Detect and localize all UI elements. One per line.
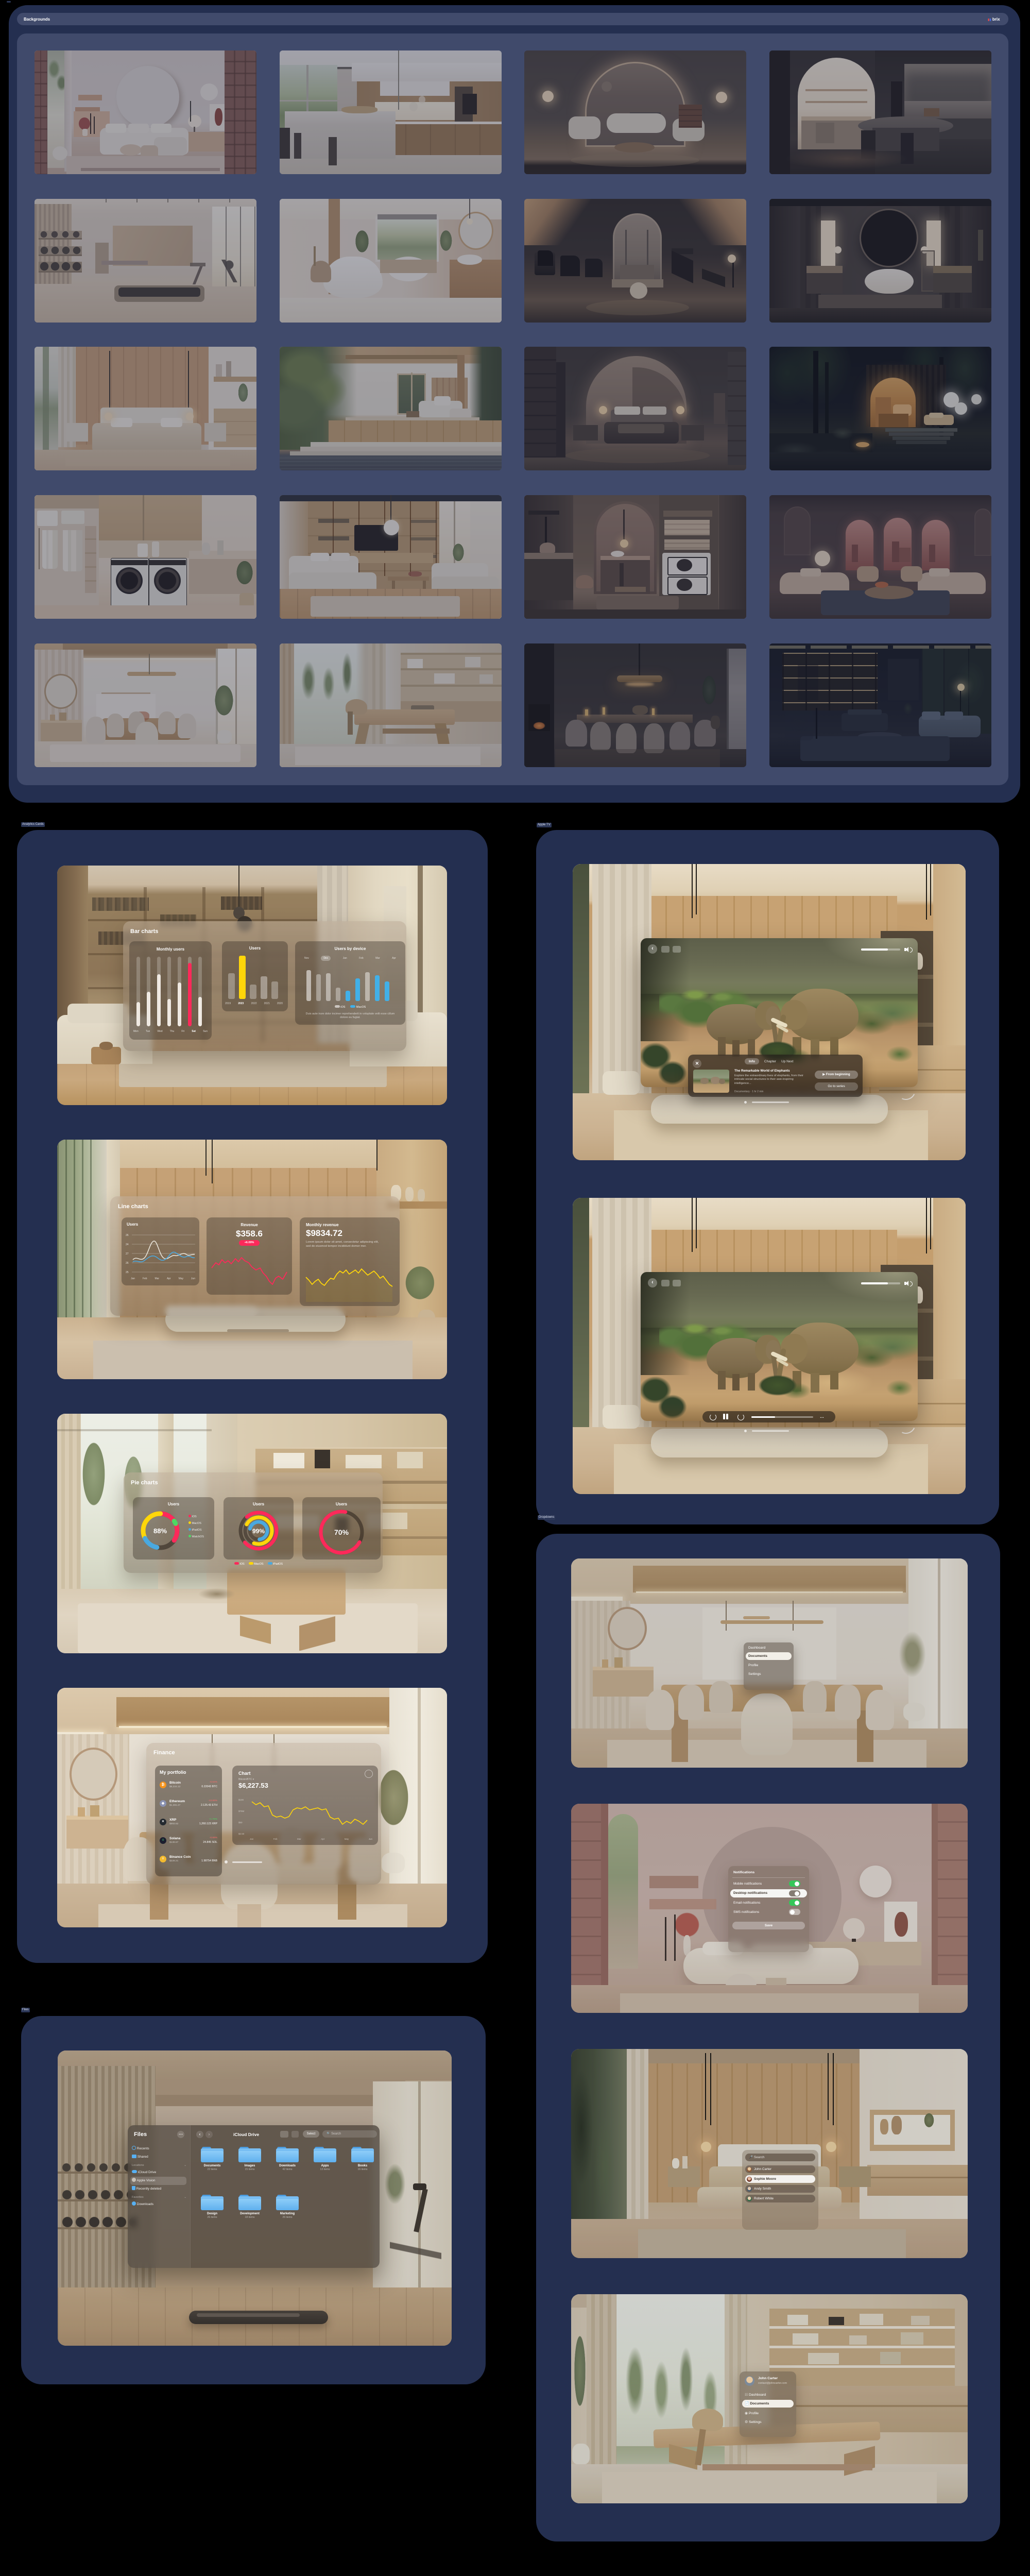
svg-text:27: 27 — [126, 1252, 129, 1256]
svg-text:25: 25 — [126, 1271, 129, 1274]
svg-text:88%: 88% — [153, 1527, 167, 1535]
svg-text:99%: 99% — [252, 1528, 265, 1535]
svg-text:26: 26 — [126, 1234, 129, 1237]
svg-text:24: 24 — [126, 1243, 129, 1246]
svg-text:26: 26 — [126, 1262, 129, 1265]
svg-text:70%: 70% — [334, 1528, 349, 1536]
